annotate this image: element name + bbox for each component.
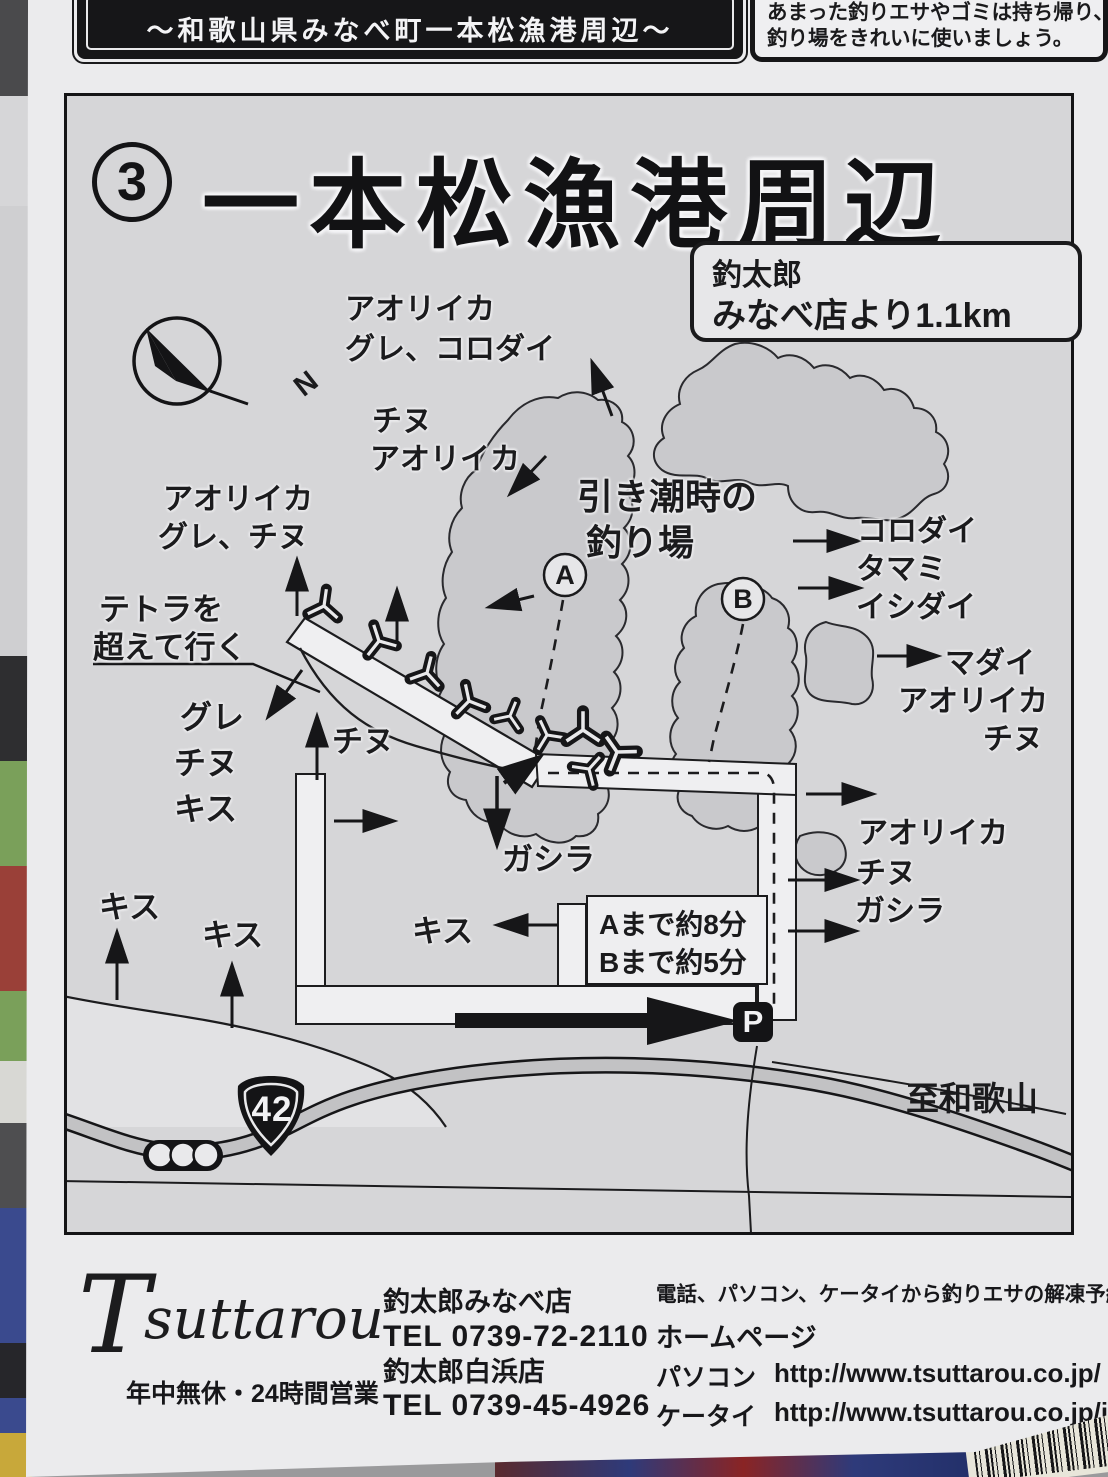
spot-marker-a: A [547,560,583,591]
fish-label-w2-line1: グレ [180,692,244,738]
to-wakayama-label: 至和歌山 [906,1072,1038,1120]
shop1-name: 釣太郎みなべ店 [383,1286,650,1319]
shop2-tel: TEL 0739-45-4926 [383,1388,650,1425]
distance-line2: みなべ店より1.1km [712,288,1012,337]
fish-label-nw1-line2: グレ、コロダイ [345,324,555,368]
walking-time-box: Aまで約8分 Bまで約5分 [586,895,768,985]
fish-label-w2-line3: キス [174,784,237,830]
paper-sheet: 〜和歌山県みなべ町一本松漁港周辺〜 あまった釣りエサやゴミは持ち帰り、 釣り場を… [0,0,1108,1477]
banner-title: 〜和歌山県みなべ町一本松漁港周辺〜 [77,9,743,48]
pc-label: パソコン [656,1358,760,1394]
page-banner: 〜和歌山県みなべ町一本松漁港周辺〜 [72,0,748,64]
fish-label-e3-line3: ガシラ [855,886,945,930]
fish-label-w1-line2: グレ、チヌ [158,512,308,556]
fish-label-e1-line3: イシダイ [856,582,976,626]
tsuttarou-logo: Tsuttarou [78,1282,384,1352]
logo-initial: T [78,1253,150,1378]
map-number-badge: 3 [92,142,172,222]
time-to-a: Aまで約8分 [599,903,747,943]
manners-notice-box: あまった釣りエサやゴミは持ち帰り、 釣り場をきれいに使いましょう。 [750,0,1108,62]
banner-background: 〜和歌山県みなべ町一本松漁港周辺〜 [77,0,743,59]
compass-icon [134,318,248,404]
parking-access-road [455,1013,647,1028]
logo-subtitle: 年中無休・24時間営業 [126,1374,379,1410]
tide-spot-label-line1: 引き潮時の [577,468,757,520]
fish-label-pier-chinu: チヌ [332,716,394,761]
fish-label-gashira: ガシラ [502,834,595,879]
reservation-note: 電話、パソコン、ケータイから釣りエサの解凍予約が出来ます。 [656,1277,1108,1307]
fish-label-kisu-3: キス [412,906,473,951]
traffic-light-icon [143,1140,223,1171]
tetra-note-pointer-line [93,664,320,692]
background-strip [0,206,32,656]
rock-far-east [805,622,873,704]
shop-contact-block: 釣太郎みなべ店 TEL 0739-72-2110 釣太郎白浜店 TEL 0739… [383,1286,650,1425]
parking-icon: P [733,1002,773,1042]
time-to-b: Bまで約5分 [599,941,747,981]
spot-marker-b: B [725,584,761,615]
finger-pier [558,904,586,990]
background-strip [0,0,32,96]
tetra-note-line2: 超えて行く [93,622,246,667]
fish-label-e2-line3: チヌ [983,714,1043,758]
shop2-name: 釣太郎白浜店 [383,1356,650,1389]
fish-label-e3-line1: アオリイカ [858,808,1008,852]
fish-label-kisu-2: キス [202,910,263,955]
pc-url: http://www.tsuttarou.co.jp/ [774,1358,1101,1394]
tide-spot-label-line2: 釣り場 [586,514,694,566]
homepage-heading: ホームページ [656,1316,1108,1355]
photographed-fishing-map-page: 〜和歌山県みなべ町一本松漁港周辺〜 あまった釣りエサやゴミは持ち帰り、 釣り場を… [0,0,1108,1477]
logo-word: suttarou [144,1287,384,1352]
fish-label-w2-line2: チヌ [174,738,238,784]
fish-label-kisu-1: キス [99,882,160,927]
shop1-tel: TEL 0739-72-2110 [383,1319,650,1356]
pc-url-row: パソコン http://www.tsuttarou.co.jp/ [656,1358,1108,1394]
notice-line2: 釣り場をきれいに使いましょう。 [767,21,1073,51]
rock-southeast [795,832,846,875]
route-42-number: 42 [241,1090,303,1130]
mobile-label: ケータイ [656,1397,760,1433]
fish-label-nw2-line2: アオリイカ [370,434,520,478]
mobile-url: http://www.tsuttarou.co.jp/i/ [774,1397,1108,1433]
web-contact-block: 電話、パソコン、ケータイから釣りエサの解凍予約が出来ます。 ホームページ パソコ… [656,1277,1108,1433]
fish-label-nw1-line1: アオリイカ [345,284,495,328]
mobile-url-row: ケータイ http://www.tsuttarou.co.jp/i/ [656,1397,1108,1433]
distance-box: 釣太郎 みなべ店より1.1km [690,241,1082,342]
background-strip [0,96,32,206]
